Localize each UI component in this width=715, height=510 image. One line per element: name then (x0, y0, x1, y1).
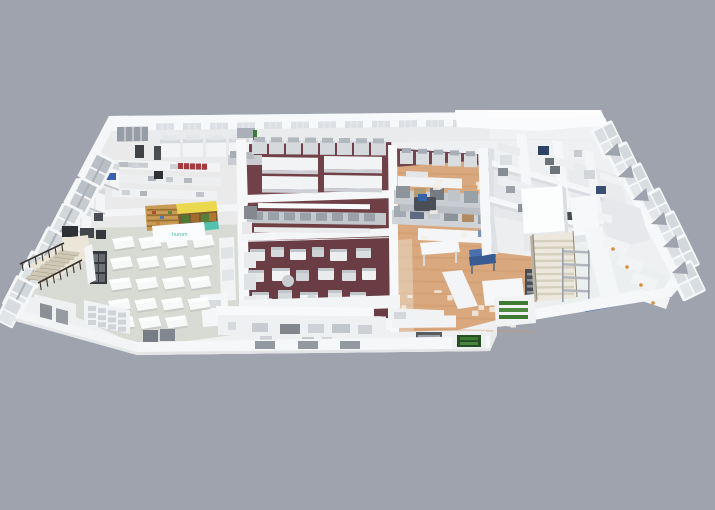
svg-text:hurom: hurom (172, 232, 188, 238)
